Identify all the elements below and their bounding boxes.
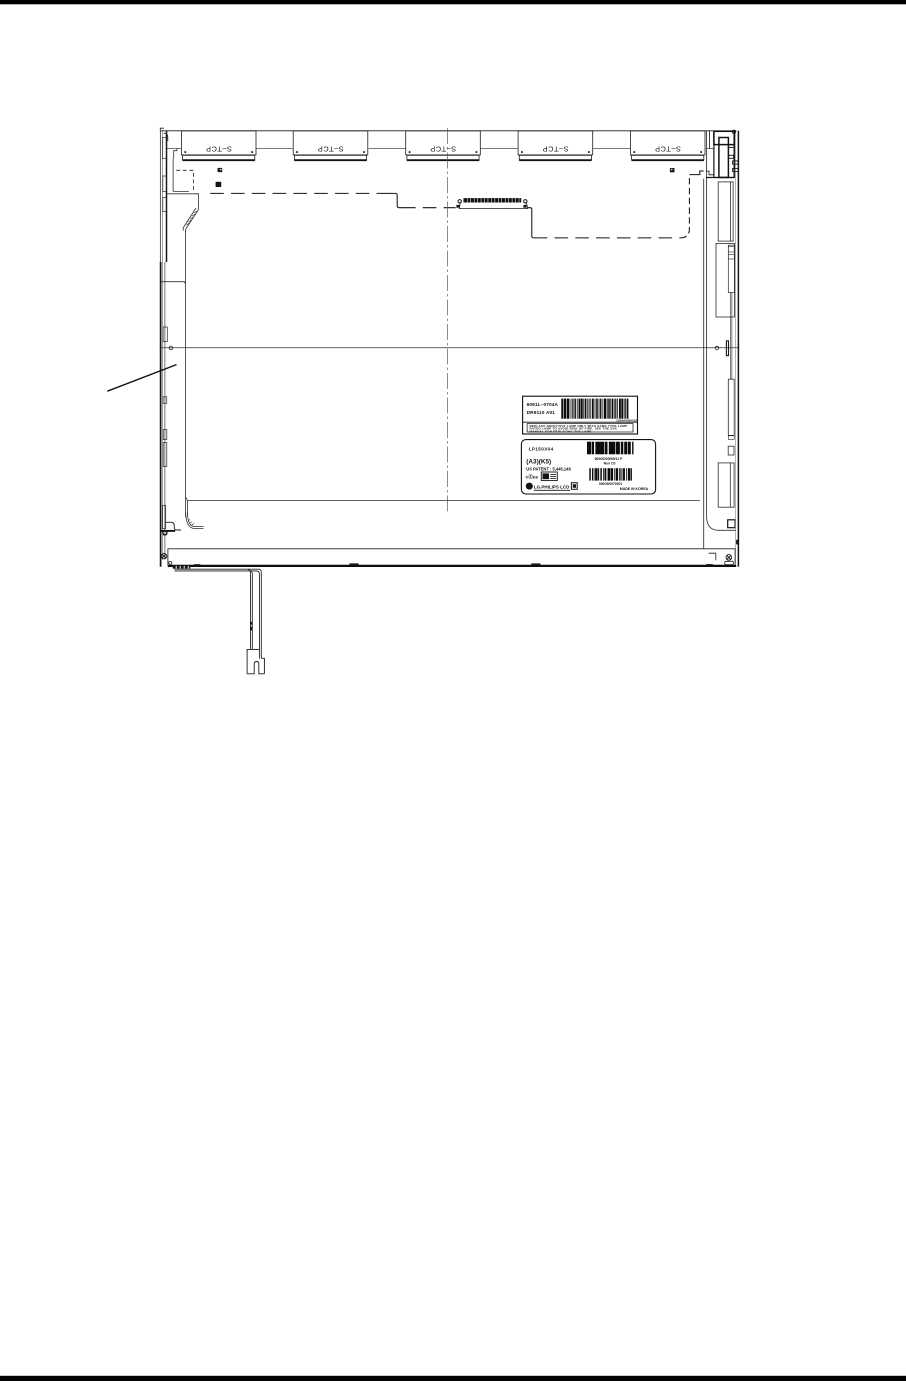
svg-text:LG.PHILIPS LCD: LG.PHILIPS LCD	[534, 485, 570, 490]
svg-text:Rev C0: Rev C0	[604, 462, 616, 466]
svg-text:LP150X04: LP150X04	[529, 447, 554, 452]
svg-text:DR9110: DR9110	[527, 410, 545, 416]
svg-text:(A3)(K5): (A3)(K5)	[526, 458, 551, 465]
svg-text:600GD00HW11 P: 600GD00HW11 P	[595, 457, 623, 461]
svg-text:S–TCP: S–TCP	[655, 145, 681, 154]
svg-text:S–TCP: S–TCP	[430, 145, 456, 154]
svg-text:S–TCP: S–TCP	[317, 145, 343, 154]
svg-text:1S94A0000018: 1S94A0000018	[616, 418, 637, 422]
svg-text:MANUAL FOR REPLACING THE LAMP.: MANUAL FOR REPLACING THE LAMP.	[530, 429, 593, 433]
svg-text:6091L–0704A: 6091L–0704A	[527, 402, 559, 408]
svg-text:000GD0970001: 000GD0970001	[599, 482, 622, 486]
svg-text:A01: A01	[546, 410, 555, 416]
svg-text:S–TCP: S–TCP	[542, 145, 568, 154]
svg-text:MADE IN KOREA: MADE IN KOREA	[620, 487, 649, 491]
svg-text:US PATENT : 5,445,148: US PATENT : 5,445,148	[526, 466, 571, 471]
svg-text:cⓈus: cⓈus	[526, 474, 539, 481]
svg-text:S–TCP: S–TCP	[206, 145, 232, 154]
